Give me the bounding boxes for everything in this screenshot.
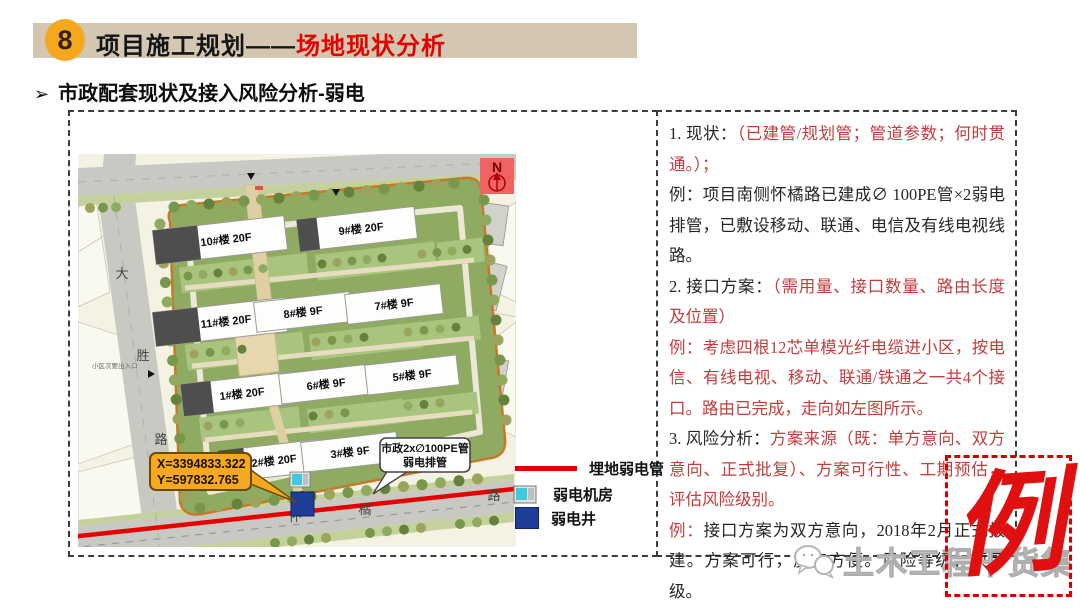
site-plan-panel: 10#楼 20F 9#楼 20F 11#楼 20F 8#楼 9F 7#楼 9F … <box>68 110 658 557</box>
well-swatch <box>515 507 539 529</box>
legend-item-well: 弱电井 <box>515 507 596 529</box>
weak-current-room-icon <box>290 472 310 487</box>
section-number-badge: 8 <box>45 19 85 61</box>
site-plan-content: 10#楼 20F 9#楼 20F 11#楼 20F 8#楼 9F 7#楼 9F … <box>70 148 516 555</box>
chevron-bullet-icon: ➢ <box>34 84 49 104</box>
analysis-paragraph: 例：项目南侧怀橘路已建成∅ 100PE管×2弱电排管，已敷设移动、联通、电信及有… <box>669 180 1005 272</box>
svg-text:市政2x∅100PE管: 市政2x∅100PE管 <box>381 441 469 455</box>
central-plaza <box>235 332 279 376</box>
page-title-highlight: 场地现状分析 <box>296 33 446 60</box>
svg-text:路: 路 <box>154 432 167 447</box>
room-swatch-icon <box>513 483 541 505</box>
svg-text:X=3394833.322: X=3394833.322 <box>157 457 246 471</box>
legend-item-pipe: 埋地弱电管 <box>515 458 664 479</box>
north-compass: N <box>480 158 514 194</box>
analysis-paragraph: 1. 现状：（已建管/规划管；管道参数；何时贯通。）； <box>669 119 1005 180</box>
section-subtitle: ➢市政配套现状及接入风险分析-弱电 <box>34 77 365 106</box>
svg-text:橘: 橘 <box>358 502 371 517</box>
analysis-paragraph: 例：考虑四根12芯单模光纤电缆进小区，按电信、有线电视、移动、联通/铁通之一共4… <box>669 333 1005 425</box>
weak-current-well-icon <box>291 492 314 516</box>
side-gate-label: 小区次要出入口 <box>92 361 138 370</box>
page-title: 项目施工规划——场地现状分析 <box>96 26 446 61</box>
example-stamp: 例 <box>945 455 1072 597</box>
analysis-paragraph: 2. 接口方案：（需用量、接口数量、路由长度及位置） <box>669 272 1005 333</box>
svg-text:大: 大 <box>115 266 128 281</box>
example-stamp-char: 例 <box>949 466 1069 586</box>
slide: 8 项目施工规划——场地现状分析 ➢市政配套现状及接入风险分析-弱电 <box>0 0 1080 608</box>
pipe-line-swatch <box>515 466 577 471</box>
svg-text:路: 路 <box>487 488 500 503</box>
section-subtitle-text: 市政配套现状及接入风险分析-弱电 <box>58 83 365 105</box>
svg-text:胜: 胜 <box>136 348 149 363</box>
page-title-main: 项目施工规划—— <box>96 33 296 60</box>
legend-item-room: 弱电机房 <box>513 483 613 505</box>
svg-text:弱电排管: 弱电排管 <box>403 455 447 469</box>
wechat-icon <box>793 543 837 579</box>
svg-text:Y=597832.765: Y=597832.765 <box>157 473 239 487</box>
